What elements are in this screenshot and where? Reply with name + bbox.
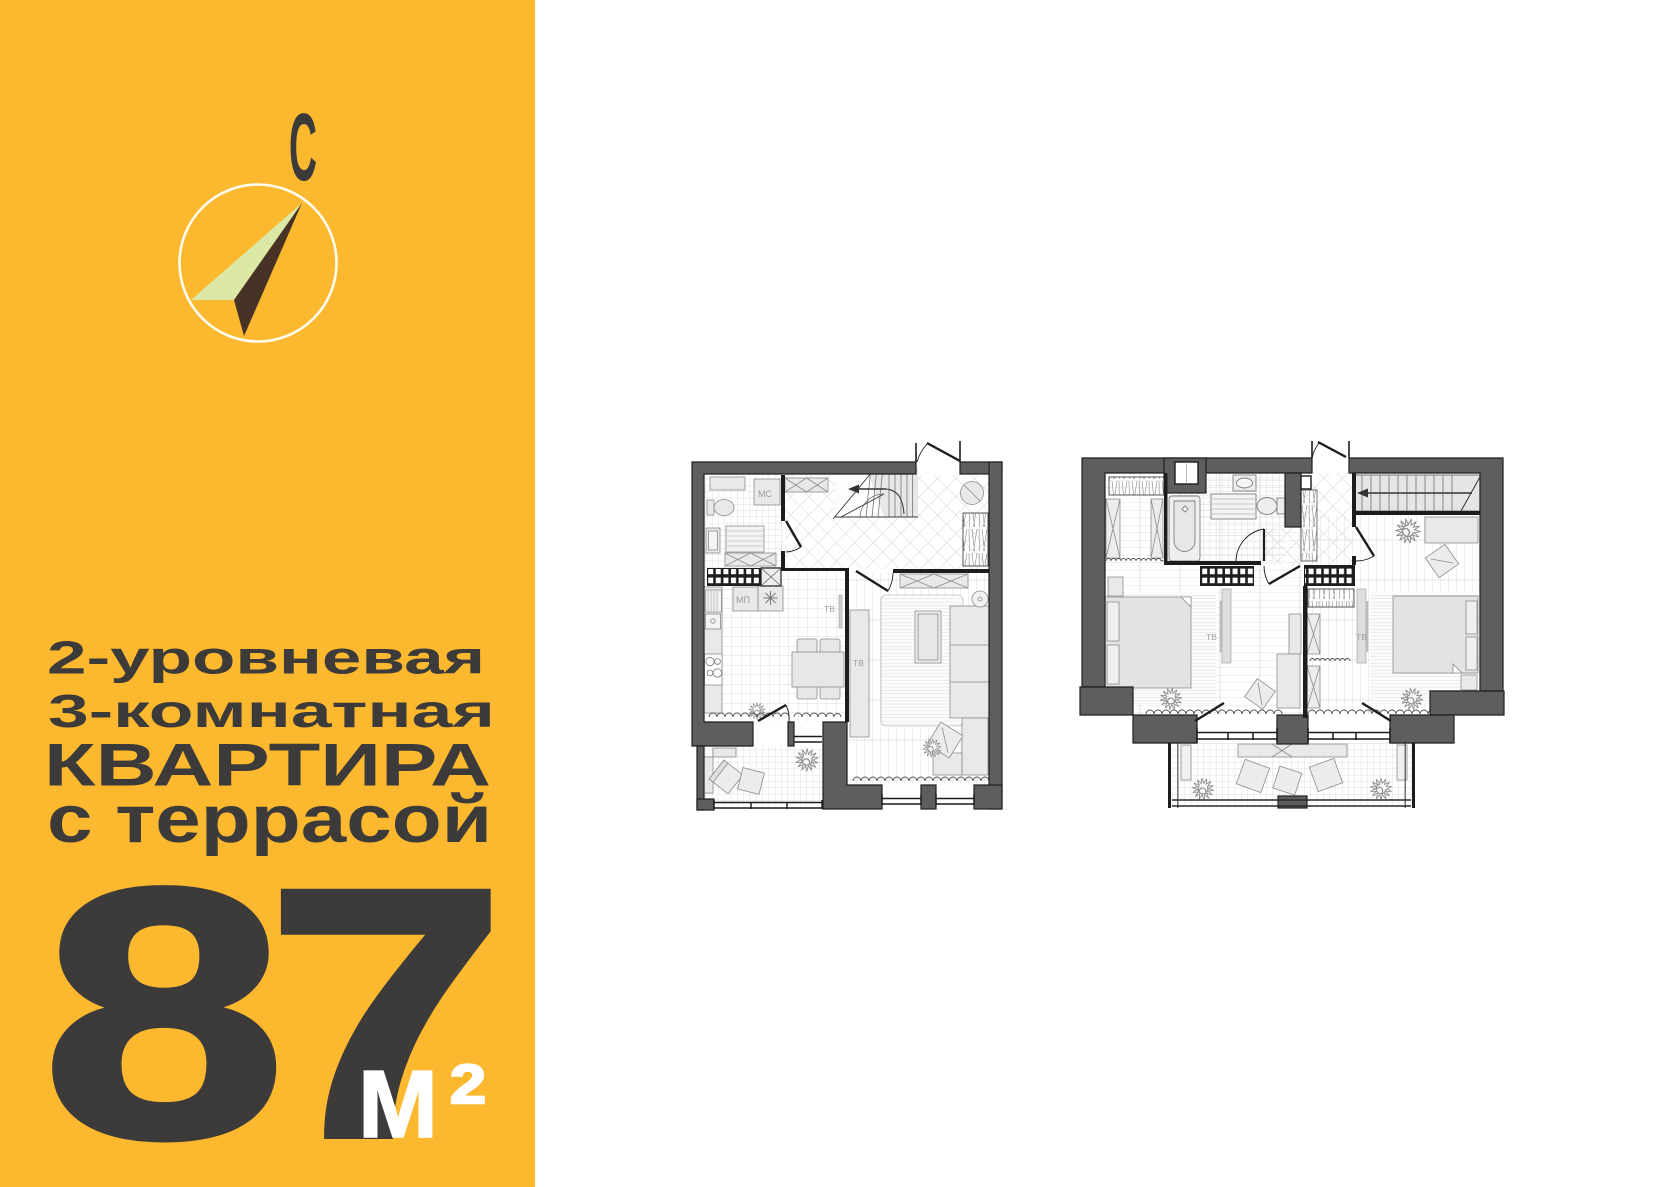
svg-text:ТВ: ТВ (824, 604, 835, 614)
svg-text:МП: МП (736, 595, 750, 605)
svg-text:МС: МС (758, 489, 772, 499)
svg-text:ТВ: ТВ (1356, 632, 1367, 642)
svg-text:3-комнатная: 3-комнатная (48, 685, 495, 737)
svg-text:С: С (289, 94, 317, 201)
svg-text:М: М (358, 1051, 438, 1158)
svg-text:2-уровневая: 2-уровневая (47, 632, 485, 684)
svg-text:ТВ: ТВ (853, 658, 864, 668)
svg-text:2: 2 (450, 1053, 486, 1115)
svg-text:ТВ: ТВ (1206, 632, 1217, 642)
svg-text:8: 8 (42, 816, 286, 1187)
